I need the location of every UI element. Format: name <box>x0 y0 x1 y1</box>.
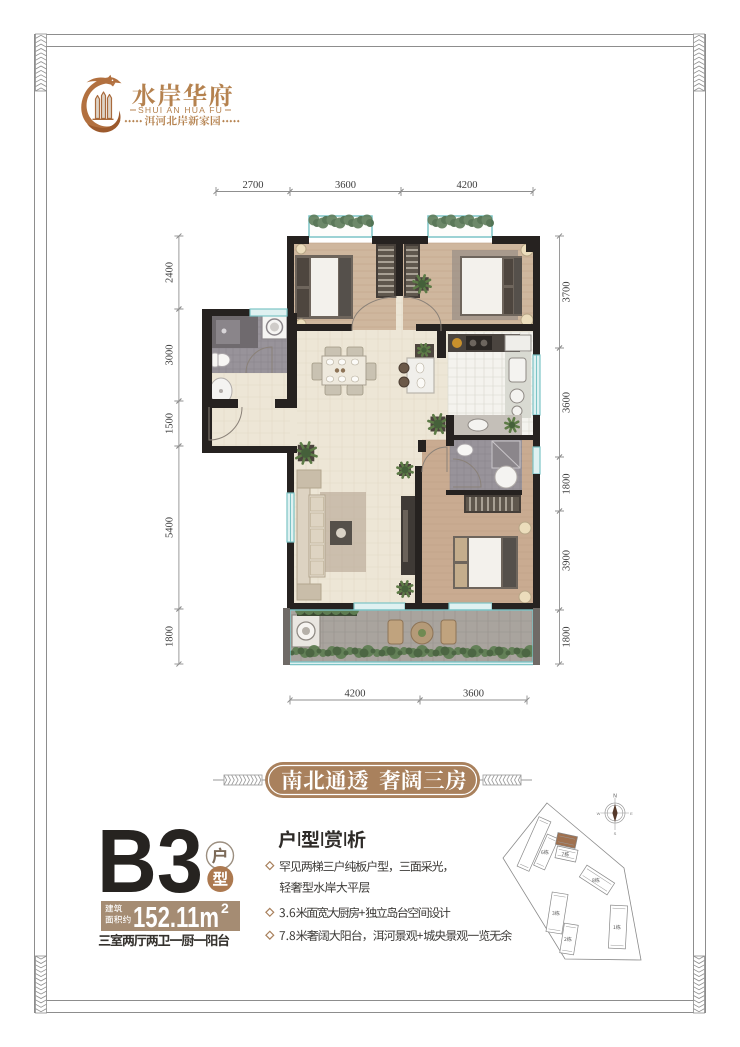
svg-text:1500: 1500 <box>164 413 175 434</box>
svg-text:N: N <box>613 794 617 800</box>
svg-text:3700: 3700 <box>562 282 573 303</box>
svg-text:W: W <box>597 811 601 816</box>
svg-text:S: S <box>614 831 617 836</box>
svg-text:152.11m: 152.11m <box>133 902 219 934</box>
svg-text:3600: 3600 <box>335 180 356 191</box>
svg-text:SHUI AN HUA FU: SHUI AN HUA FU <box>138 105 223 115</box>
svg-text:3900: 3900 <box>562 550 573 571</box>
svg-text:1800: 1800 <box>562 627 573 648</box>
svg-text:5400: 5400 <box>164 517 175 538</box>
svg-text:E: E <box>630 811 633 816</box>
svg-text:4200: 4200 <box>345 689 366 700</box>
svg-text:4200: 4200 <box>457 180 478 191</box>
svg-text:1800: 1800 <box>164 626 175 647</box>
svg-text:3000: 3000 <box>164 345 175 366</box>
svg-text:3600: 3600 <box>463 689 484 700</box>
svg-text:2700: 2700 <box>243 180 264 191</box>
svg-text:2: 2 <box>221 900 229 916</box>
svg-text:B3: B3 <box>97 812 203 912</box>
svg-text:1800: 1800 <box>562 474 573 495</box>
svg-text:2400: 2400 <box>164 262 175 283</box>
svg-text:3600: 3600 <box>562 392 573 413</box>
